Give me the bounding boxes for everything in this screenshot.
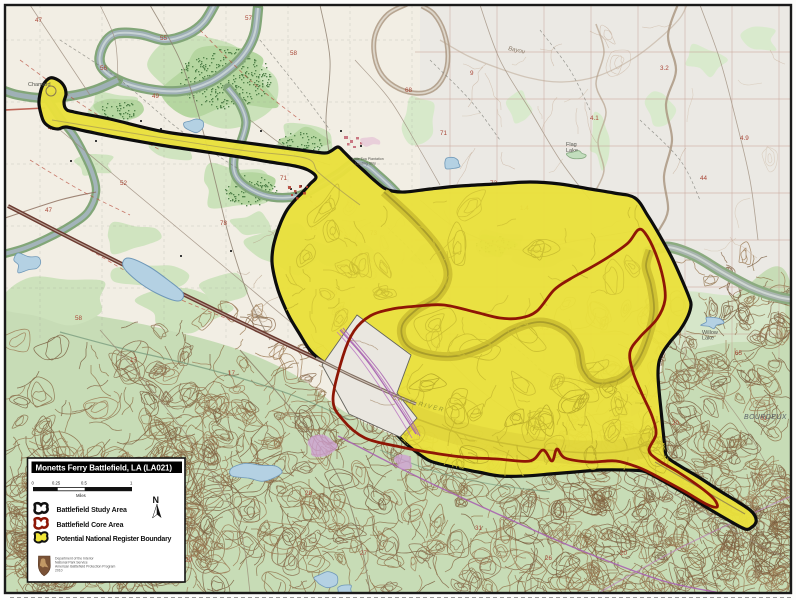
svg-text:0.5: 0.5 bbox=[81, 481, 87, 486]
svg-text:9: 9 bbox=[470, 70, 474, 77]
svg-text:20: 20 bbox=[620, 550, 628, 557]
svg-text:Chamard: Chamard bbox=[28, 82, 51, 88]
svg-text:58: 58 bbox=[290, 50, 298, 57]
svg-text:0.25: 0.25 bbox=[52, 481, 61, 486]
svg-text:20: 20 bbox=[672, 420, 680, 427]
svg-text:65: 65 bbox=[735, 350, 743, 357]
svg-text:4.1: 4.1 bbox=[590, 115, 599, 122]
svg-text:56: 56 bbox=[100, 65, 108, 72]
svg-text:American Battlefield Protectio: American Battlefield Protection Program bbox=[55, 565, 115, 569]
svg-text:71: 71 bbox=[440, 130, 448, 137]
svg-text:58: 58 bbox=[75, 315, 83, 322]
svg-text:26: 26 bbox=[545, 555, 553, 562]
svg-text:Potential National Register Bo: Potential National Register Boundary bbox=[57, 536, 172, 543]
svg-text:N: N bbox=[153, 495, 160, 505]
svg-text:Monetts Ferry Battlefield, LA: Monetts Ferry Battlefield, LA (LA021) bbox=[36, 463, 173, 472]
svg-text:28: 28 bbox=[305, 490, 313, 497]
svg-text:78: 78 bbox=[220, 220, 228, 227]
svg-text:BOURDEUX: BOURDEUX bbox=[744, 414, 787, 421]
svg-text:Battlefield Study Area: Battlefield Study Area bbox=[57, 507, 127, 514]
svg-text:17: 17 bbox=[130, 357, 138, 364]
svg-text:27: 27 bbox=[360, 550, 368, 557]
svg-text:31: 31 bbox=[475, 525, 483, 532]
svg-text:47: 47 bbox=[45, 207, 53, 214]
svg-text:29: 29 bbox=[185, 557, 193, 564]
svg-text:Landing Strip: Landing Strip bbox=[355, 162, 376, 166]
svg-text:52: 52 bbox=[120, 180, 128, 187]
svg-text:Battlefield Core Area: Battlefield Core Area bbox=[57, 522, 124, 529]
svg-text:57: 57 bbox=[245, 15, 253, 22]
svg-text:44: 44 bbox=[700, 175, 708, 182]
svg-text:49: 49 bbox=[152, 93, 160, 100]
svg-text:55: 55 bbox=[160, 35, 168, 42]
svg-text:2010: 2010 bbox=[55, 569, 63, 573]
svg-text:4.9: 4.9 bbox=[740, 135, 749, 142]
svg-text:17: 17 bbox=[228, 370, 236, 377]
svg-text:47: 47 bbox=[35, 17, 43, 24]
svg-text:Miles: Miles bbox=[76, 493, 86, 498]
svg-text:Little Eva Plantation: Little Eva Plantation bbox=[352, 157, 384, 161]
svg-text:3.2: 3.2 bbox=[660, 65, 669, 72]
svg-text:71: 71 bbox=[280, 175, 288, 182]
svg-text:68: 68 bbox=[405, 87, 413, 94]
